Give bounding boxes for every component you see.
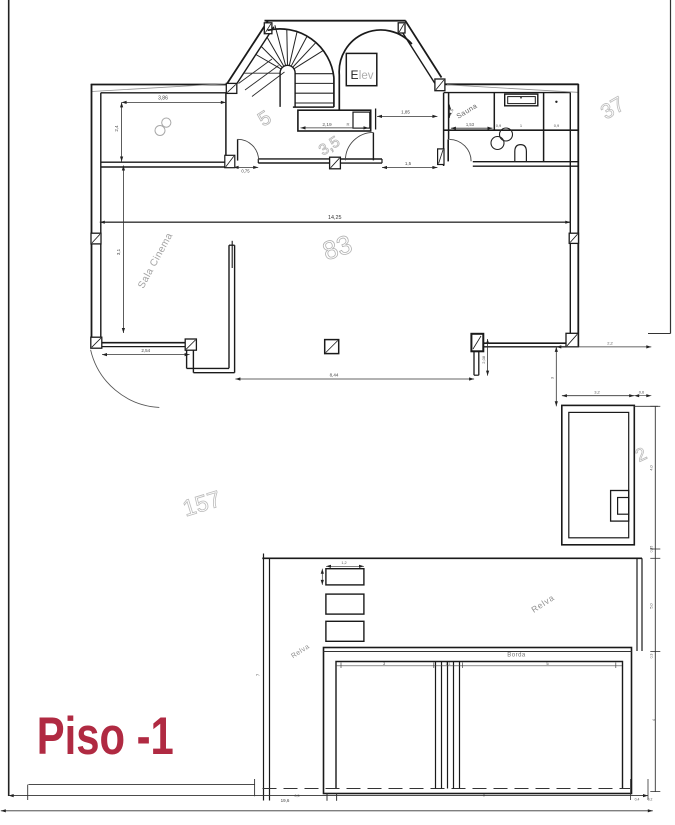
svg-text:0,4: 0,4	[635, 797, 640, 801]
svg-text:19,6: 19,6	[281, 798, 290, 803]
svg-text:0,6: 0,6	[639, 389, 645, 394]
svg-text:0,45: 0,45	[650, 546, 654, 553]
svg-text:0,3: 0,3	[650, 654, 654, 659]
svg-text:0,9: 0,9	[554, 123, 560, 128]
svg-text:3,1: 3,1	[116, 248, 121, 255]
svg-text:0,9: 0,9	[496, 123, 502, 128]
svg-text:2,08: 2,08	[481, 355, 486, 364]
svg-text:1,5: 1,5	[405, 161, 412, 166]
svg-text:1,1: 1,1	[446, 662, 451, 666]
svg-text:5,0: 5,0	[650, 603, 654, 608]
svg-text:Borda: Borda	[507, 653, 526, 659]
svg-text:2,19: 2,19	[322, 122, 332, 128]
svg-text:lev: lev	[359, 70, 374, 82]
svg-text:2,4: 2,4	[114, 125, 119, 132]
svg-text:1,85: 1,85	[401, 109, 410, 114]
svg-text:8,44: 8,44	[330, 372, 339, 377]
svg-text:Piso -1: Piso -1	[37, 707, 174, 766]
svg-text:2,2: 2,2	[607, 341, 613, 346]
svg-text:R: R	[346, 122, 349, 127]
svg-text:4: 4	[652, 719, 656, 721]
svg-text:1,53: 1,53	[466, 122, 475, 127]
svg-text:2,54: 2,54	[141, 348, 150, 353]
svg-text:14,25: 14,25	[328, 215, 342, 221]
svg-text:4,0: 4,0	[649, 465, 653, 470]
svg-text:3,86: 3,86	[158, 96, 168, 102]
svg-text:1,2: 1,2	[341, 561, 346, 565]
svg-text:E: E	[351, 68, 359, 82]
svg-text:0,75: 0,75	[241, 169, 250, 174]
svg-text:0,2: 0,2	[648, 797, 653, 801]
svg-text:3,2: 3,2	[594, 389, 600, 394]
